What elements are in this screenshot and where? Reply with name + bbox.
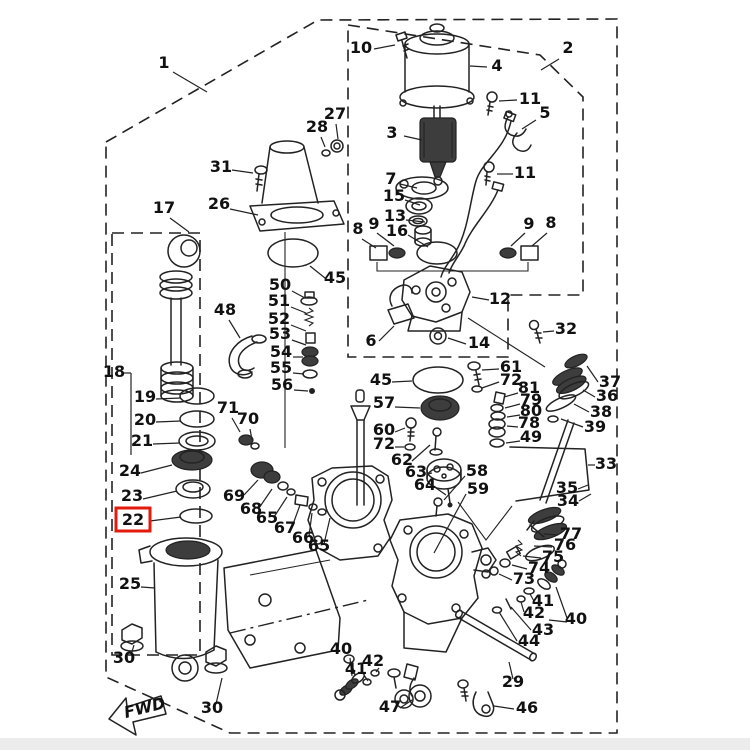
part-label-6[interactable]: 6 — [365, 331, 376, 350]
highlighted-oring-22 — [180, 509, 212, 523]
part-label-45[interactable]: 45 — [370, 370, 392, 389]
part-label-16[interactable]: 16 — [386, 221, 408, 240]
part-label-58[interactable]: 58 — [466, 461, 488, 480]
brush-lead-wire-drawing — [505, 111, 531, 151]
part-label-57[interactable]: 57 — [373, 393, 395, 412]
valve-62-drawing — [430, 428, 442, 455]
tilt-cylinder-25-drawing — [139, 538, 222, 681]
part-label-9[interactable]: 9 — [523, 214, 534, 233]
part-label-40[interactable]: 40 — [330, 639, 352, 658]
part-label-4[interactable]: 4 — [491, 56, 502, 75]
reservoir-oring-45-drawing — [268, 239, 318, 267]
part-label-44[interactable]: 44 — [518, 631, 540, 650]
part-label-3[interactable]: 3 — [386, 123, 397, 142]
fwd-label: FWD — [122, 693, 167, 722]
parts-diagram: FWD 121043115272831261771513161189984550… — [0, 0, 750, 750]
part-label-17[interactable]: 17 — [153, 198, 175, 217]
mount-bolts-30-drawing — [121, 624, 227, 673]
part-label-48[interactable]: 48 — [214, 300, 236, 319]
nut-27-washer-28-drawing — [322, 140, 343, 156]
part-label-59[interactable]: 59 — [467, 479, 489, 498]
part-label-23[interactable]: 23 — [121, 486, 143, 505]
main-oring-45-drawing — [413, 367, 463, 393]
tilt-ram-drawing — [160, 235, 200, 402]
seal-rings-13-15-16-drawing — [406, 198, 457, 264]
part-label-70[interactable]: 70 — [237, 409, 259, 428]
part-label-45[interactable]: 45 — [324, 268, 346, 287]
part-label-34[interactable]: 34 — [557, 491, 579, 510]
part-label-15[interactable]: 15 — [383, 186, 405, 205]
part-label-21[interactable]: 21 — [131, 431, 153, 450]
fwd-direction-arrow: FWD — [109, 693, 167, 735]
seal-57-drawing — [421, 396, 459, 420]
part-label-22[interactable]: 22 — [122, 510, 144, 529]
part-label-56[interactable]: 56 — [271, 375, 293, 394]
part-label-28[interactable]: 28 — [306, 117, 328, 136]
diagram-svg: FWD 121043115272831261771513161189984550… — [0, 0, 750, 750]
bolt-60-washer-72-drawing — [405, 418, 416, 450]
part-label-65[interactable]: 65 — [308, 536, 330, 555]
part-labels-layer: 1210431152728312617715131611899845505152… — [103, 38, 621, 717]
part-label-51[interactable]: 51 — [268, 291, 290, 310]
part-label-5[interactable]: 5 — [539, 103, 550, 122]
part-label-24[interactable]: 24 — [119, 461, 141, 480]
reservoir-tank-26-drawing — [250, 141, 344, 448]
trim-piston-parts-36-39-drawing — [544, 351, 590, 422]
part-label-42[interactable]: 42 — [362, 651, 384, 670]
part-label-14[interactable]: 14 — [468, 333, 490, 352]
part-label-8[interactable]: 8 — [545, 213, 556, 232]
clamp-48-drawing — [229, 335, 266, 378]
part-label-33[interactable]: 33 — [595, 454, 617, 473]
part-label-9[interactable]: 9 — [368, 214, 379, 233]
part-label-40[interactable]: 40 — [565, 609, 587, 628]
part-label-47[interactable]: 47 — [379, 697, 401, 716]
part-label-46[interactable]: 46 — [516, 698, 538, 717]
ram-seal-rings-drawing — [172, 388, 215, 523]
motor-screws-11-drawing — [484, 92, 497, 185]
part-label-11[interactable]: 11 — [514, 163, 536, 182]
part-label-10[interactable]: 10 — [350, 38, 372, 57]
part-label-8[interactable]: 8 — [352, 219, 363, 238]
electric-motor-drawing — [400, 24, 474, 108]
part-label-53[interactable]: 53 — [269, 324, 291, 343]
part-label-1[interactable]: 1 — [158, 53, 169, 72]
armature-drawing — [420, 106, 456, 177]
part-label-29[interactable]: 29 — [502, 672, 524, 691]
part-label-2[interactable]: 2 — [562, 38, 573, 57]
part-label-71[interactable]: 71 — [217, 398, 239, 417]
motor-bolt-drawing — [396, 32, 409, 58]
part-label-31[interactable]: 31 — [210, 157, 232, 176]
part-label-18[interactable]: 18 — [103, 362, 125, 381]
part-label-26[interactable]: 26 — [208, 194, 230, 213]
bolt-32-drawing — [530, 321, 543, 344]
part-label-73[interactable]: 73 — [513, 569, 535, 588]
part-label-30[interactable]: 30 — [201, 698, 223, 717]
part-label-39[interactable]: 39 — [584, 417, 606, 436]
connector-6-drawing — [388, 285, 414, 324]
part-label-19[interactable]: 19 — [134, 387, 156, 406]
bottom-margin-strip — [0, 738, 750, 750]
part-label-25[interactable]: 25 — [119, 574, 141, 593]
part-label-30[interactable]: 30 — [113, 648, 135, 667]
part-label-32[interactable]: 32 — [555, 319, 577, 338]
section-divider-line — [230, 600, 368, 633]
part-label-12[interactable]: 12 — [489, 289, 511, 308]
part-label-64[interactable]: 64 — [414, 475, 436, 494]
mount-plate-drawing — [224, 550, 340, 668]
center-piston-rod-drawing — [351, 390, 370, 505]
manual-valve-parts-50-56-drawing — [301, 292, 318, 394]
part-label-20[interactable]: 20 — [134, 410, 156, 429]
part-label-49[interactable]: 49 — [520, 427, 542, 446]
part-label-11[interactable]: 11 — [519, 89, 541, 108]
